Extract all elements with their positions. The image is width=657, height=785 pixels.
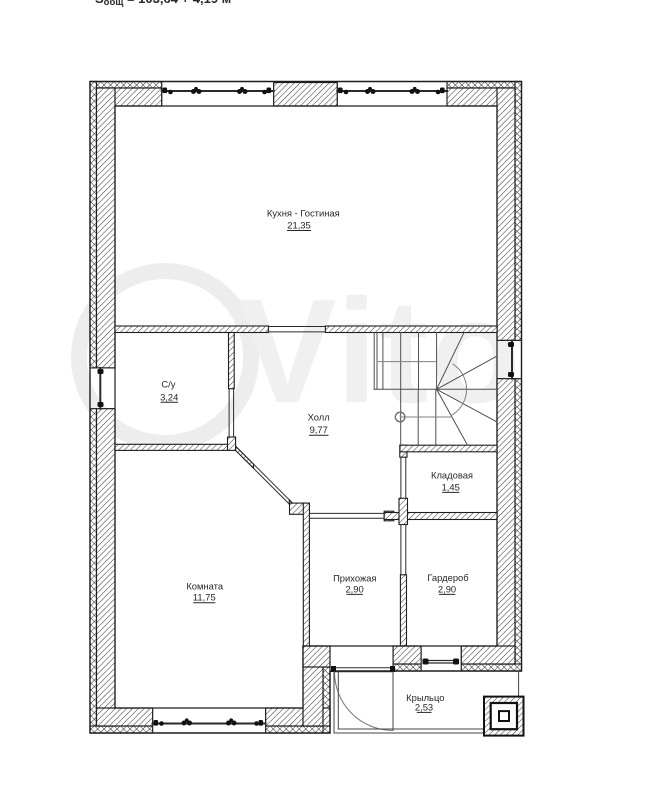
svg-text:С/у: С/у [161,378,175,389]
svg-text:11,75: 11,75 [193,592,216,603]
svg-text:2,90: 2,90 [345,583,363,594]
svg-text:2,53: 2,53 [415,701,433,712]
svg-text:Кладовая: Кладовая [431,469,473,480]
svg-text:Холл: Холл [308,412,330,423]
svg-text:Sобщ = 103,64 + 4,19 м: Sобщ = 103,64 + 4,19 м [95,0,231,8]
svg-text:2,90: 2,90 [438,583,456,594]
svg-text:Vito: Vito [238,269,523,434]
svg-text:3,24: 3,24 [160,391,178,402]
svg-text:9,77: 9,77 [310,424,328,435]
svg-text:1,45: 1,45 [442,481,460,492]
svg-text:Гардероб: Гардероб [427,572,468,583]
svg-text:Кухня - Гостиная: Кухня - Гостиная [267,208,340,219]
svg-text:Комната: Комната [186,580,223,591]
svg-text:Прихожая: Прихожая [333,573,376,584]
svg-text:21,35: 21,35 [287,220,310,231]
